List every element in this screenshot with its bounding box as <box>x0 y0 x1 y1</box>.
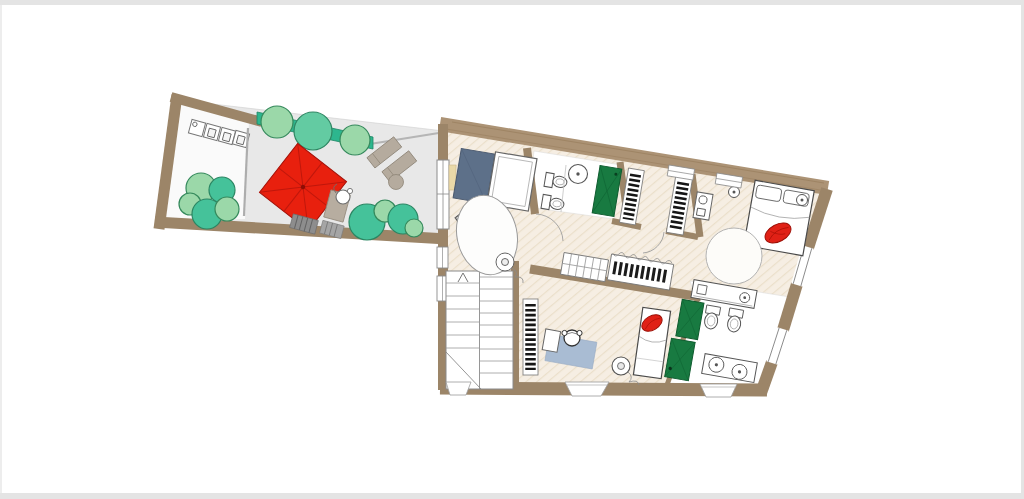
hedge-tree-1 <box>261 106 293 138</box>
window-bottom-2 <box>700 384 737 397</box>
cistern <box>541 194 551 209</box>
lamp-bulb <box>801 199 804 202</box>
lounger-table <box>389 175 404 190</box>
main-staircase <box>446 271 513 389</box>
tree <box>215 197 239 221</box>
basin-drain <box>576 172 579 175</box>
wall-lamp-2 <box>797 195 808 206</box>
lamp-bulb <box>618 363 625 370</box>
bedroom2-desk <box>542 329 560 352</box>
chair-arm <box>577 330 582 335</box>
bedroom1-round-rug <box>706 228 762 284</box>
lamp-bulb <box>733 191 736 194</box>
shelf-box <box>697 284 707 294</box>
stairwell-window-1 <box>437 247 448 268</box>
window-reveal <box>565 382 609 396</box>
window-reveal <box>700 384 737 397</box>
wall-lamp-1 <box>729 187 740 198</box>
window-bottom-1 <box>565 382 609 396</box>
counter-square <box>188 119 205 136</box>
bathroom1-basin <box>569 165 588 184</box>
counter-stool-1 <box>203 123 220 140</box>
cistern <box>544 172 554 187</box>
frame-left <box>0 5 2 493</box>
frame-bottom <box>0 493 1024 499</box>
floor-plan-page <box>0 0 1024 499</box>
stool-cushion <box>207 128 216 138</box>
tree <box>405 219 423 237</box>
table-lamp <box>502 259 509 266</box>
bedroom2-wardrobe <box>523 299 538 375</box>
frame-top <box>0 0 1024 5</box>
jug-spout <box>347 188 352 193</box>
floor-plan <box>0 0 1024 499</box>
counter-sink-module <box>188 119 205 136</box>
stool-cushion <box>222 132 231 142</box>
hedge-tree-2 <box>294 112 332 150</box>
chair-arm <box>562 330 567 335</box>
stool-cushion <box>236 135 245 145</box>
dresser-tray <box>696 208 705 216</box>
hedge-tree-3 <box>340 125 370 155</box>
